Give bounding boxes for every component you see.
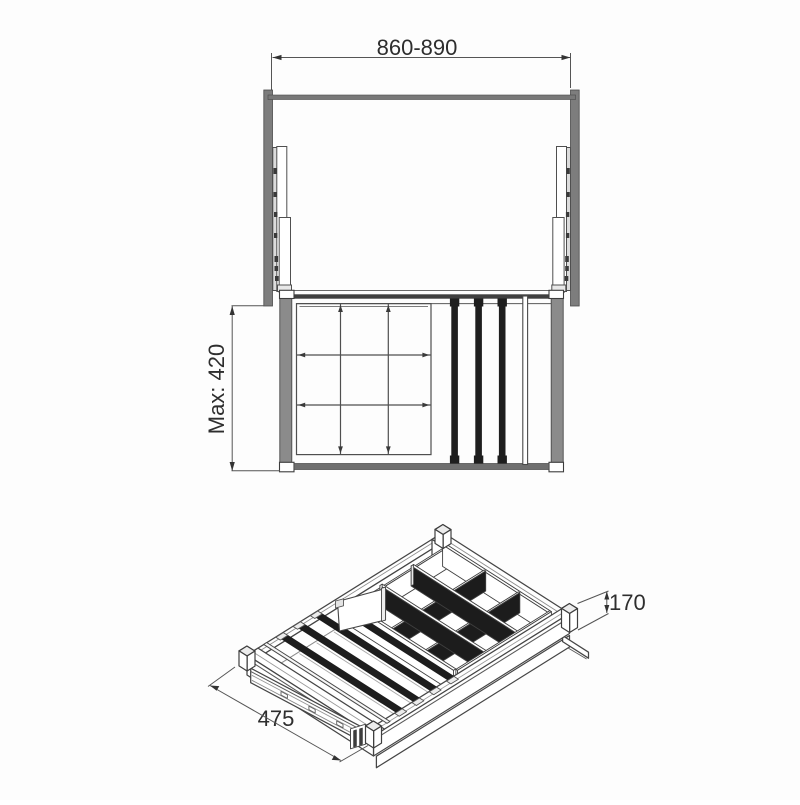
svg-text:170: 170 — [609, 590, 646, 615]
svg-text:860-890: 860-890 — [377, 35, 458, 60]
svg-text:Max: 420: Max: 420 — [204, 344, 229, 435]
svg-text:475: 475 — [258, 706, 295, 731]
